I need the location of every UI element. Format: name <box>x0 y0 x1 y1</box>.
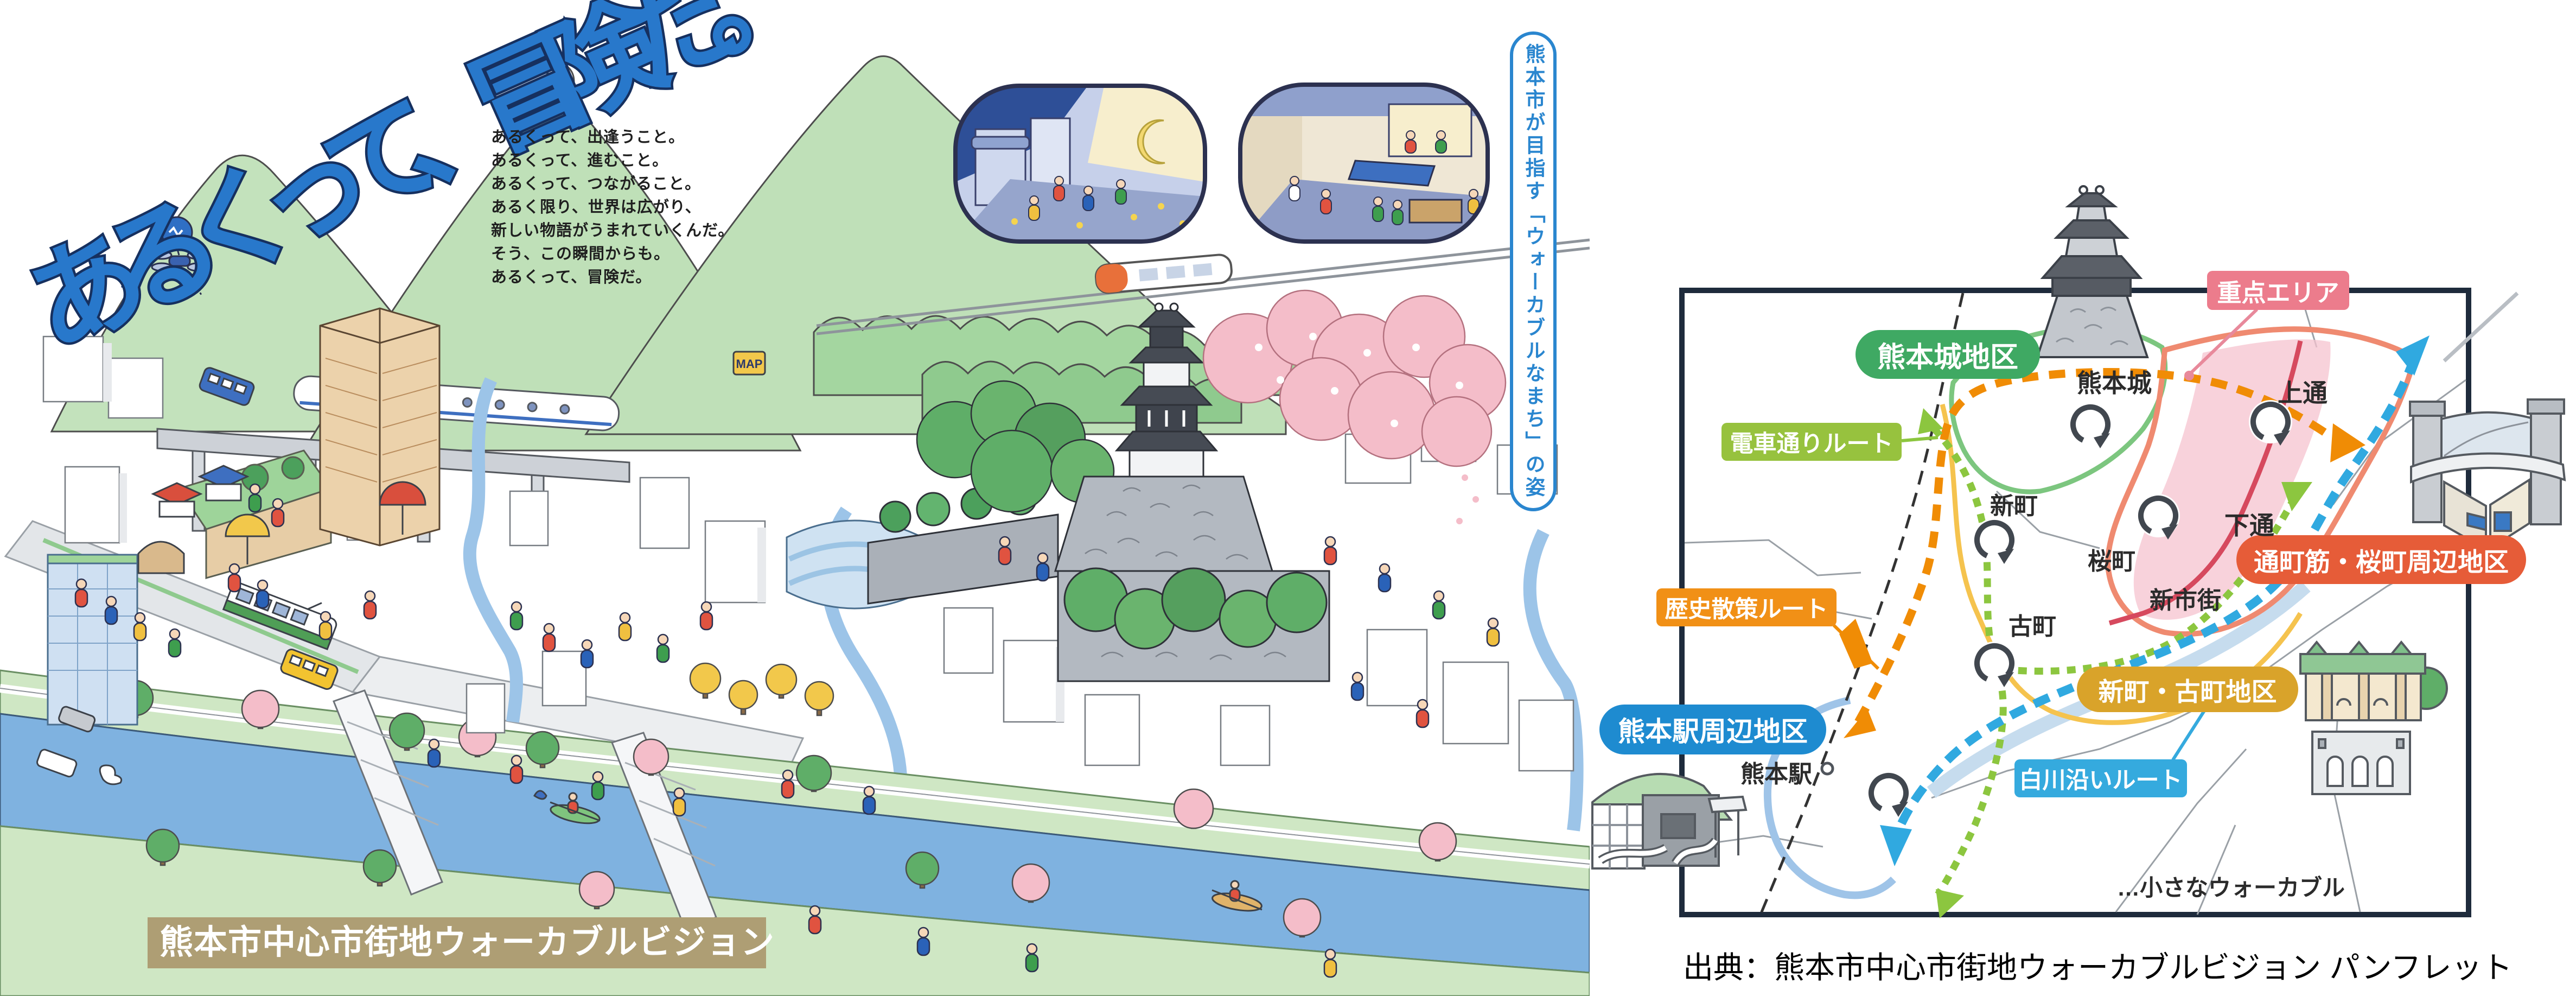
route-label-history-walk: 歴史散策ルート <box>1656 588 1837 626</box>
area-label-kumamoto-station-district: 熊本駅周辺地区 <box>1599 705 1826 754</box>
legend-small-walkable: …小さなウォーカブル <box>2117 870 2345 903</box>
source-caption: 出典：熊本市中心市街地ウォーカブルビジョン パンフレット <box>1683 943 2513 987</box>
vision-label-bar: 熊本市中心市街地ウォーカブルビジョン <box>148 917 766 968</box>
walkable-map <box>1590 0 2576 996</box>
city-illustration: MAP あるくって、冒 <box>0 0 1590 996</box>
inset-bubble-izakaya <box>1240 85 1488 242</box>
poem-line: あるくって、つながること。 <box>491 173 734 196</box>
poem-block: あるくって、出逢うこと。 あるくって、進むこと。 あるくって、つながること。 あ… <box>491 126 734 289</box>
area-label-torichosuji-sakuramachi-district: 通町筋・桜町周辺地区 <box>2236 535 2526 584</box>
glass-building <box>48 555 137 725</box>
area-label-priority: 重点エリア <box>2207 271 2349 310</box>
local-train-icon <box>1095 254 1233 294</box>
tan-tower <box>320 308 439 545</box>
inset-bubble-night-street <box>955 86 1205 242</box>
place-name-kamitori: 上通 <box>2278 373 2328 409</box>
route-label-tram: 電車通りルート <box>1721 423 1902 461</box>
place-name-kumamoto-castle: 熊本城 <box>2077 364 2152 399</box>
poster: MAP あるくって、冒 <box>0 0 2576 996</box>
area-label-shinmachi-furumachi-district: 新町・古町地区 <box>2077 667 2298 712</box>
poem-line: あるくって、進むこと。 <box>491 149 734 173</box>
poem-line: 新しい物語がうまれていくんだ。 <box>491 219 734 243</box>
map-sign-text: MAP <box>736 357 763 371</box>
gingko-trees <box>690 663 833 715</box>
place-name-furumachi: 古町 <box>2008 607 2056 642</box>
place-name-kumamoto-station: 熊本駅 <box>1740 754 1812 789</box>
station-marker <box>1822 763 1833 774</box>
place-name-shimotori: 下通 <box>2224 506 2274 542</box>
poem-line: あるく限り、世界は広がり、 <box>491 196 734 219</box>
poem-line: そう、この瞬間からも。 <box>491 243 734 266</box>
poem-line: あるくって、冒険だ。 <box>491 266 734 289</box>
castle-icon <box>2037 186 2147 357</box>
route-label-shirakawa: 白川沿いルート <box>2014 759 2187 797</box>
side-note-pill: 熊本市が目指す「ウォーカブルなまち」の姿 <box>1510 31 1557 511</box>
place-name-sakuramachi: 桜町 <box>2088 542 2135 576</box>
place-name-shinmachi: 新町 <box>1990 486 2038 521</box>
area-label-kumamoto-castle-district: 熊本城地区 <box>1856 330 2040 379</box>
map-sign: MAP <box>734 352 765 375</box>
poem-line: あるくって、出逢うこと。 <box>491 126 734 149</box>
place-name-shinshigai: 新市街 <box>2150 581 2221 616</box>
